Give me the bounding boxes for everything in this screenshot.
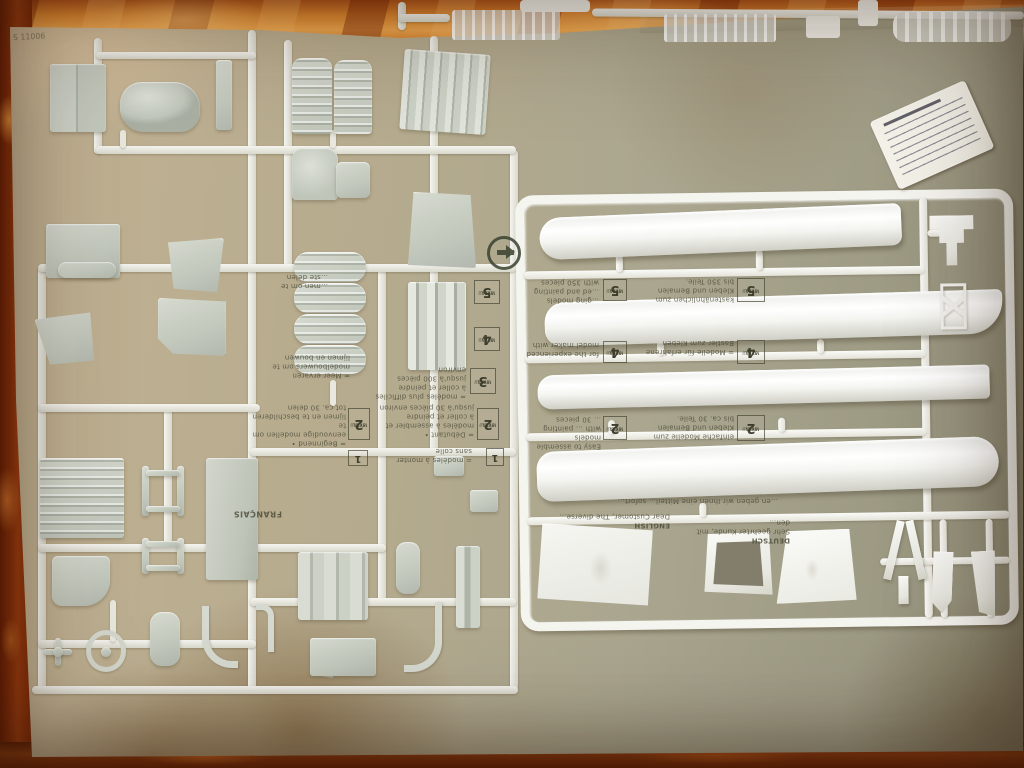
part-battery-box <box>310 638 376 676</box>
skill-level-box-4: NIVEAU 4 SKILL <box>474 327 500 351</box>
skill-level-box-1: 1 <box>486 448 504 466</box>
part-small-box <box>470 490 498 512</box>
skill-level-box-2: NIVEAU 2 SKILL <box>737 415 765 441</box>
skill-level-box-5: NIVEAU 5 SKILL <box>737 278 765 302</box>
part-channel-beam <box>456 546 480 628</box>
part-cab-rear-panel <box>50 64 106 132</box>
sprue-gate <box>756 250 763 270</box>
skill-level-box-2: NIVEAU 2 SKILL <box>477 408 499 440</box>
print-skill2-german: einfache Modelle zum Kleben und Bemalen … <box>628 413 734 440</box>
frame-rung <box>146 506 180 512</box>
part-steering-wheel <box>86 630 126 672</box>
skill-level-box-4: NIVEAU 4 SKILL <box>603 341 627 363</box>
print-skill4-german: = Modelle für erfahrene Bastler zum Kleb… <box>628 338 734 356</box>
sprue-runner <box>96 52 256 59</box>
sprue-gate <box>120 130 126 148</box>
sprue-gate <box>778 418 785 432</box>
photo-model-kit-sprues: S 11006 <box>0 0 1024 768</box>
print-fragment-dutch: …men om te …ste delen <box>258 272 328 290</box>
skill-label: SKILL <box>482 422 494 426</box>
part-wheel-arch-panel <box>52 556 110 606</box>
skill-label: SKILL <box>481 290 493 294</box>
print-german-line: …en geben wir Ihnen eine Mitteil… sofort… <box>526 496 778 505</box>
part-seat-backrest <box>292 58 332 134</box>
skill-level-box-2: NIVEAU 2 SKILL <box>348 408 370 440</box>
print-skill2-english: Easy to assemble models with … painting … <box>519 414 601 450</box>
english-header: ENGLISH <box>634 521 670 529</box>
skill-label: SKILL <box>609 426 621 430</box>
level-digit: 1 <box>492 452 499 462</box>
deutsch-body: Sehr geehrter Kunde, mit den… <box>697 518 790 535</box>
skill-label: SKILL <box>609 288 621 292</box>
sprue-runner <box>38 404 260 412</box>
steering-hub <box>101 647 111 657</box>
skill-level-box-5: NIVEAU 5 SKILL <box>603 279 627 301</box>
skill-label: SKILL <box>745 350 757 354</box>
level-digit: 1 <box>355 453 362 463</box>
y-support-arm <box>905 520 926 580</box>
part-exhaust-pipe <box>256 604 274 652</box>
skill-label: SKILL <box>609 350 621 354</box>
clear-plastic-part <box>893 12 1011 42</box>
part-seat-base <box>168 238 224 292</box>
skill-level-box-2: NIVEAU 2 SKILL <box>603 416 627 440</box>
print-skill3-french: = modèles plus difficiles à coller et pe… <box>368 364 466 400</box>
skill-level-box-5: NIVEAU 5 SKILL <box>474 280 500 304</box>
deutsch-header: DEUTSCH <box>752 536 791 544</box>
y-support-arm <box>883 520 904 580</box>
skill-label: SKILL <box>745 426 757 430</box>
part-radiator <box>408 282 466 370</box>
sprue-gate <box>817 339 824 353</box>
part-trim-strip <box>216 60 232 130</box>
skill-label: SKILL <box>745 288 757 292</box>
fan-hub <box>53 647 63 657</box>
part-cab-back-wall <box>40 458 124 538</box>
part-bumper-bar <box>58 262 116 278</box>
white-plastic-part <box>858 0 878 26</box>
part-seat-backrest <box>334 60 372 134</box>
part-seat-cushion <box>336 162 370 198</box>
frame-rung <box>146 565 180 571</box>
part-bunk-frame <box>142 538 184 574</box>
print-skill2-french: = Débutant • modèles à assembler et à co… <box>374 402 474 438</box>
print-skill5-german: kastenähnlichen zum Kleben und Bemalen b… <box>628 276 734 303</box>
print-skill1-french: = modèles à monter sans colle <box>376 446 472 464</box>
skill-level-box-3: NIVEAU 3 SKILL <box>470 368 496 394</box>
print-fragment-dutch: = Meer ervaren modelbouwers om te lijmen… <box>238 352 350 379</box>
top-sprue-runner <box>398 14 450 22</box>
skill-level-box-4: NIVEAU 4 SKILL <box>737 340 765 364</box>
clear-plastic-part <box>664 14 776 42</box>
part-fuel-tank <box>150 612 180 666</box>
english-body: Dear Customer, The diverse… <box>559 512 670 520</box>
skill-label: SKILL <box>353 422 365 426</box>
part-engine-fan <box>44 638 72 666</box>
clear-plastic-part <box>452 10 560 40</box>
skill-label: SKILL <box>477 379 489 383</box>
part-driver-seat <box>292 148 338 200</box>
part-floor-panel <box>206 458 258 580</box>
frame-rung <box>146 541 180 547</box>
white-plastic-part <box>520 0 590 12</box>
part-bunk-frame <box>142 466 184 516</box>
part-grille-slats <box>399 49 490 135</box>
print-skill4-english: for the experienced model maker with <box>519 340 599 358</box>
print-skill2-dutch: = Beginnend • eenvoudige modellen om te … <box>244 402 346 447</box>
part-bunk-mattress <box>120 82 200 132</box>
part-air-cylinder <box>396 542 420 594</box>
skill-label: SKILL <box>481 337 493 341</box>
y-support-leg <box>898 576 908 604</box>
white-plastic-part <box>806 16 840 38</box>
green-dot-recycling-icon <box>487 236 521 270</box>
part-lattice-support <box>940 283 967 329</box>
frame-rung <box>146 470 180 476</box>
part-console <box>158 298 226 356</box>
part-engine-block <box>298 552 368 620</box>
print-skill5-english: …ging models …ed and painting with 350 p… <box>519 277 599 304</box>
print-language-header-french: FRANÇAIS <box>230 508 282 518</box>
right-sprue <box>515 189 1019 636</box>
skill-level-box-1: 1 <box>348 450 368 466</box>
print-customer-note-german: DEUTSCH Sehr geehrter Kunde, mit den… <box>690 517 790 553</box>
print-customer-note-english: ENGLISH Dear Customer, The diverse… <box>528 511 670 538</box>
sprue-runner <box>32 686 518 694</box>
sprue-runner <box>284 40 292 270</box>
part-y-support <box>886 520 925 605</box>
green-dot-arrowhead <box>506 245 522 259</box>
mattress-lobe <box>294 314 366 344</box>
part-dashboard <box>408 192 476 268</box>
